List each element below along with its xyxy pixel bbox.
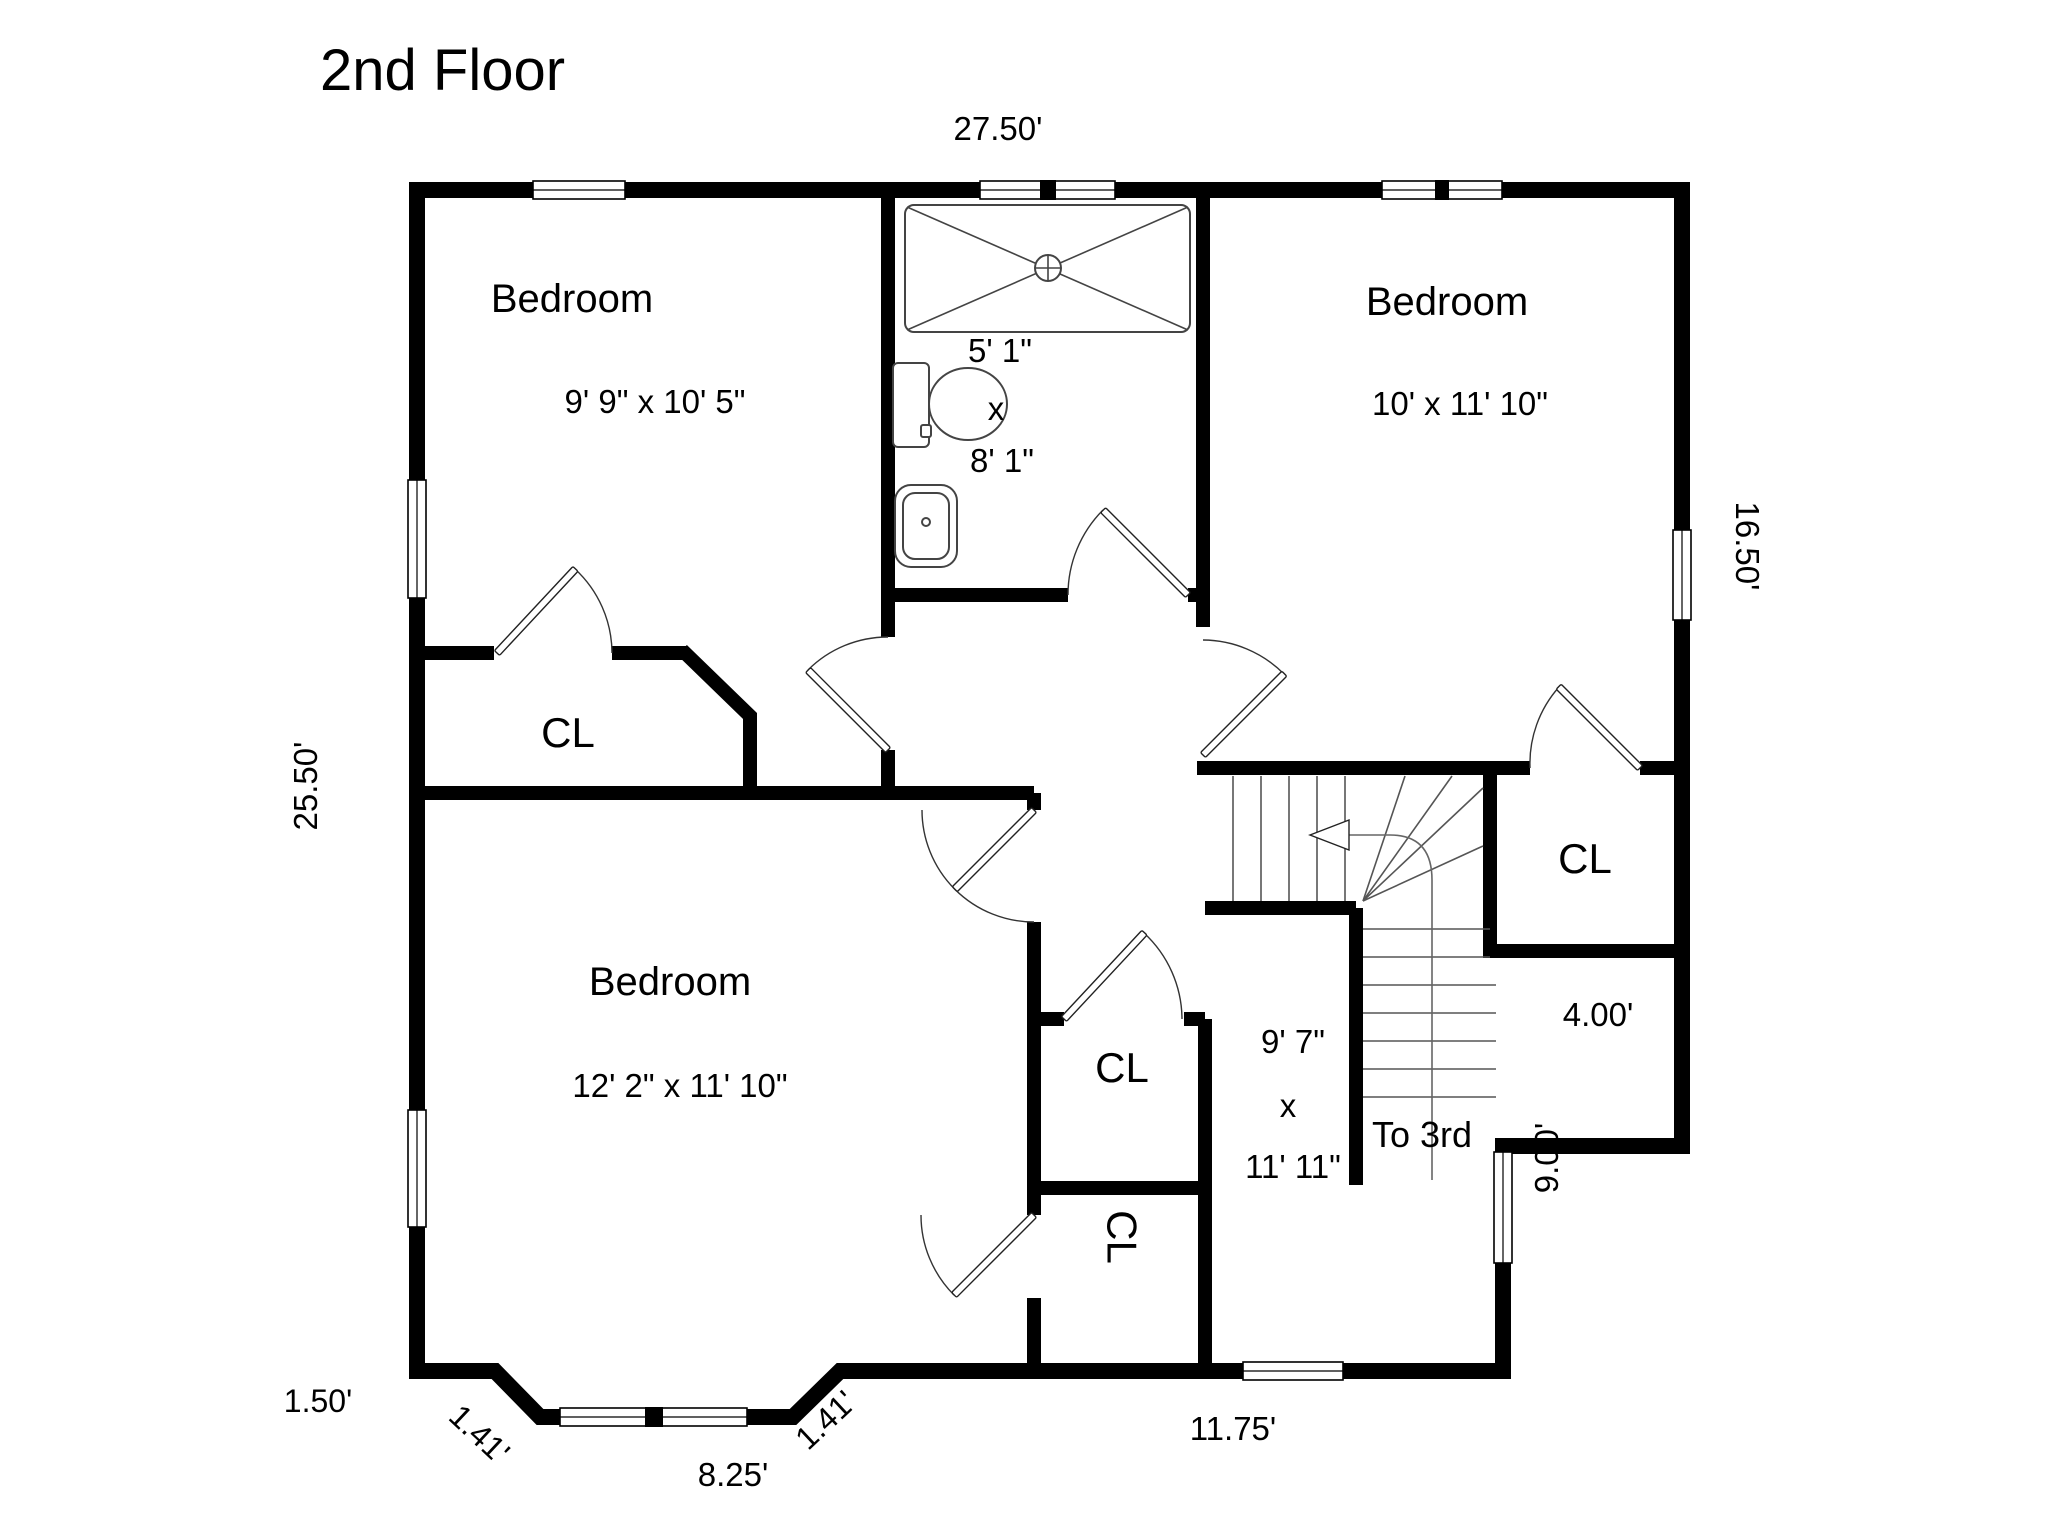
window-bay xyxy=(560,1407,747,1427)
shower-icon xyxy=(905,205,1190,332)
window-left-lower xyxy=(408,1110,426,1227)
closet-mid-lower-label: CL xyxy=(1099,1210,1146,1264)
door-closet-right xyxy=(1530,684,1643,770)
window-top-left xyxy=(533,181,625,199)
stair-note: To 3rd xyxy=(1372,1114,1472,1155)
bathroom-dim-length: 8' 1" xyxy=(970,442,1034,479)
windows xyxy=(408,180,1691,1427)
dim-closet-width: 4.00' xyxy=(1563,996,1634,1033)
door-closet-mid-lower xyxy=(921,1213,1036,1298)
closet-mid-upper-label: CL xyxy=(1095,1044,1149,1091)
window-left-upper xyxy=(408,480,426,598)
closet-tl-label: CL xyxy=(541,709,595,756)
door-bedroom-tl-closet xyxy=(494,567,612,656)
bedroom-tl-dims: 9' 9" x 10' 5" xyxy=(565,383,746,420)
door-bedroom-tr-entry xyxy=(1201,640,1287,757)
window-top-center xyxy=(980,180,1115,200)
dim-bay-diag-right: 1.41' xyxy=(788,1383,863,1456)
bedroom-tr-name: Bedroom xyxy=(1366,280,1528,324)
dim-inner-right: 9.00' xyxy=(1528,1123,1565,1194)
closet-right-label: CL xyxy=(1558,835,1612,882)
dim-top: 27.50' xyxy=(954,110,1043,147)
bathroom-dim-width: 5' 1" xyxy=(968,332,1032,369)
sink-icon xyxy=(895,485,957,567)
dim-left: 25.50' xyxy=(287,742,324,831)
stair-direction-arrow xyxy=(1310,820,1349,850)
floor-plan-canvas: 2nd Floor 27.50' 25.50' 16.50' 9.00' 4.0… xyxy=(0,0,2048,1536)
hall-dim-sep: x xyxy=(1280,1087,1297,1124)
floor-plan-page: 2nd Floor 27.50' 25.50' 16.50' 9.00' 4.0… xyxy=(0,0,2048,1536)
closet-tl-diagonal-wall xyxy=(682,650,750,793)
window-top-right xyxy=(1382,180,1502,200)
stair-winder-treads xyxy=(1363,776,1483,901)
bedroom-tr-dims: 10' x 11' 10" xyxy=(1372,385,1548,422)
dim-bottom-right: 11.75' xyxy=(1190,1410,1276,1447)
window-bottom-hall xyxy=(1243,1362,1343,1380)
dim-right: 16.50' xyxy=(1729,502,1766,591)
interior-walls xyxy=(417,197,1675,1371)
dim-bay-diag-left: 1.41' xyxy=(442,1397,517,1470)
door-closet-mid-upper xyxy=(1061,930,1182,1021)
bedroom-bl-name: Bedroom xyxy=(589,960,751,1004)
door-bathroom xyxy=(1068,508,1190,598)
window-right-inner xyxy=(1494,1152,1512,1263)
hall-dim-width: 9' 7" xyxy=(1261,1023,1325,1060)
stair-treads-lower xyxy=(1363,929,1496,1097)
window-right xyxy=(1673,530,1691,620)
door-bedroom-bl-entry xyxy=(922,808,1036,922)
bathroom-dim-sep: x xyxy=(988,390,1005,427)
doors xyxy=(494,508,1642,1298)
dim-bay-width: 8.25' xyxy=(698,1456,769,1493)
dim-bay-left-stub: 1.50' xyxy=(284,1383,352,1419)
bedroom-bl-dims: 12' 2" x 11' 10" xyxy=(572,1067,787,1104)
door-bedroom-tl-entry xyxy=(806,637,891,752)
page-title: 2nd Floor xyxy=(320,38,565,103)
bathroom-fixtures xyxy=(893,205,1190,567)
hall-dim-length: 11' 11" xyxy=(1245,1148,1341,1185)
bedroom-tl-name: Bedroom xyxy=(491,277,653,321)
